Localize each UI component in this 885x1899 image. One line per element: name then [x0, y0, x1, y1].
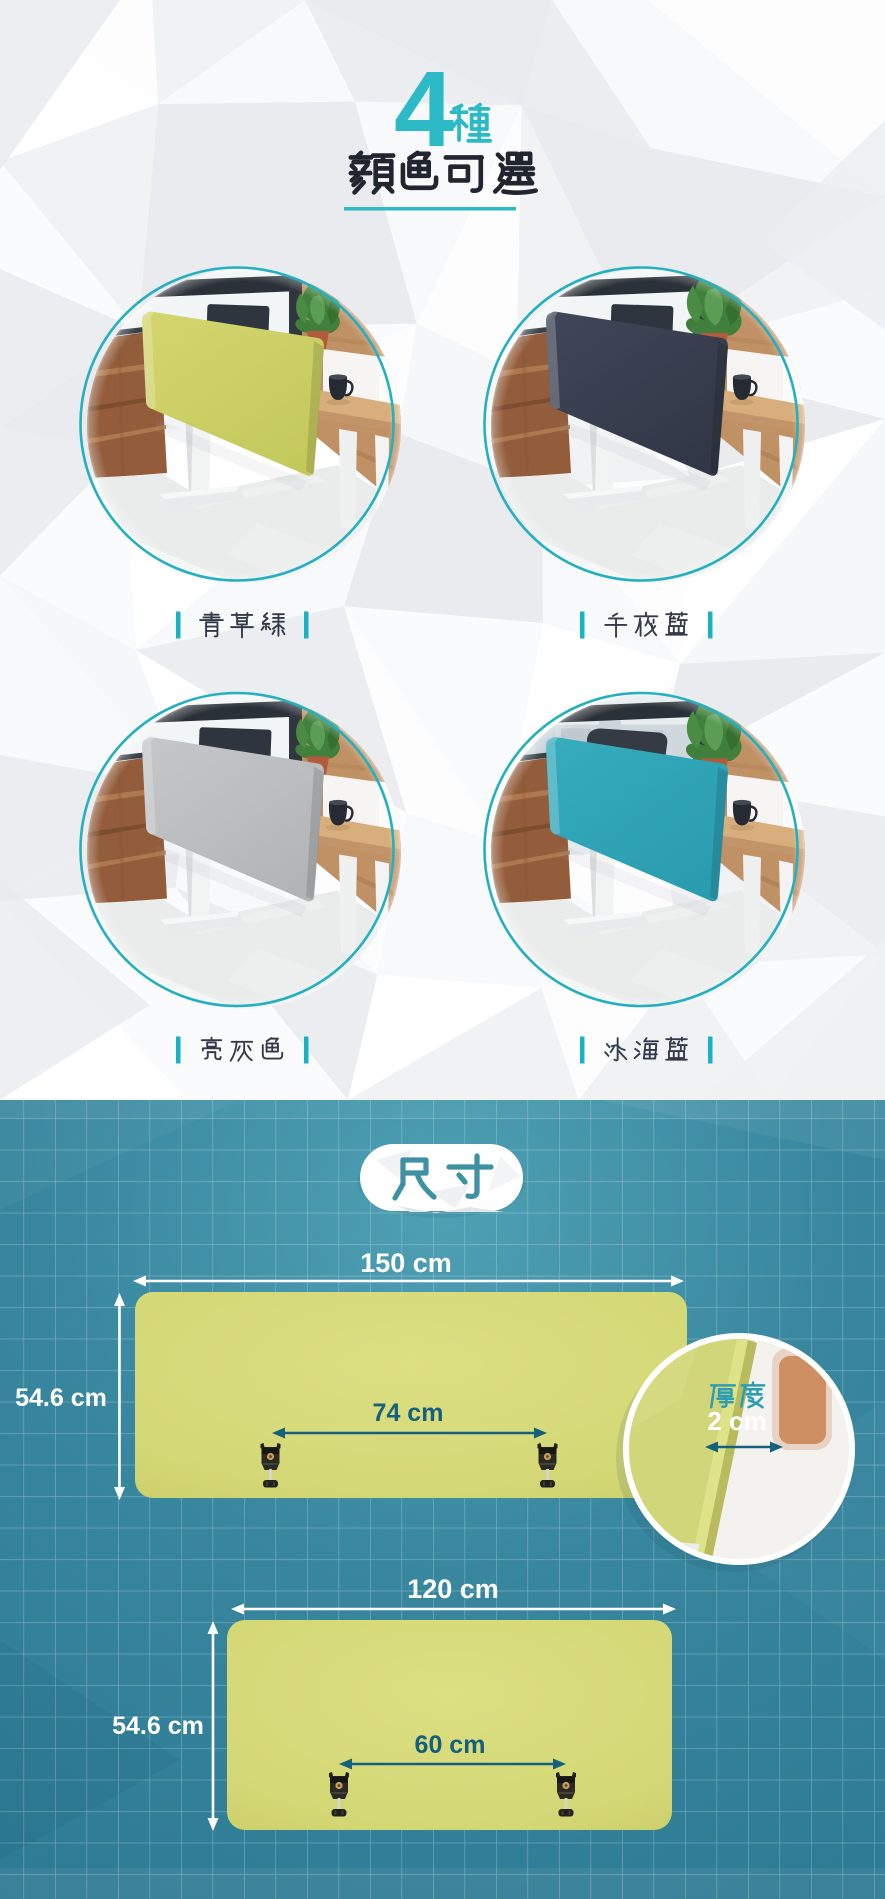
svg-text:120 cm: 120 cm — [407, 1574, 499, 1604]
svg-text:150 cm: 150 cm — [360, 1248, 452, 1278]
svg-text:60 cm: 60 cm — [415, 1731, 486, 1759]
svg-text:54.6 cm: 54.6 cm — [15, 1384, 107, 1412]
svg-text:74 cm: 74 cm — [373, 1399, 444, 1427]
svg-text:4: 4 — [394, 48, 454, 169]
svg-text:2 cm: 2 cm — [707, 1406, 766, 1436]
svg-text:54.6 cm: 54.6 cm — [112, 1712, 204, 1740]
